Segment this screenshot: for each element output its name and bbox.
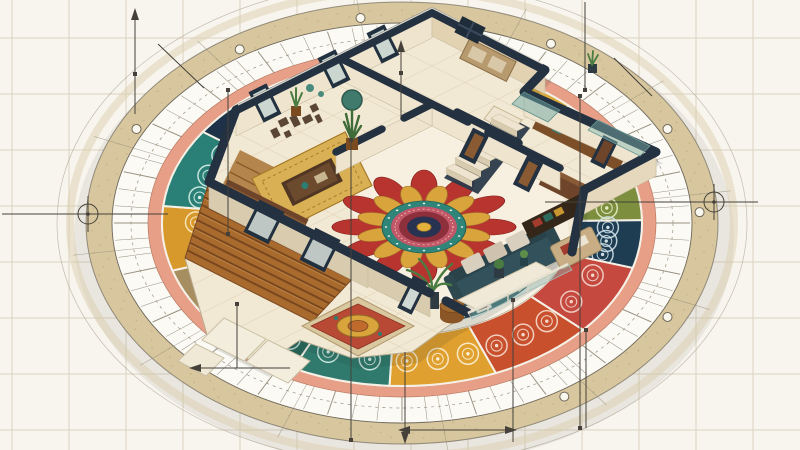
sand-speckle [128, 138, 130, 140]
sand-speckle [380, 14, 382, 16]
sand-speckle [696, 273, 698, 275]
dim-square [578, 426, 582, 430]
sand-speckle [412, 15, 414, 17]
sand-speckle [109, 194, 111, 196]
sand-speckle [369, 10, 371, 12]
sand-speckle [593, 380, 595, 382]
sand-speckle [218, 396, 220, 398]
mandala-dot [396, 210, 399, 212]
rug-dot [334, 316, 338, 320]
sand-speckle [98, 274, 100, 276]
sand-speckle [108, 258, 110, 260]
dim-square [349, 438, 353, 442]
sand-speckle [110, 287, 112, 289]
sand-speckle [707, 207, 709, 209]
mandala-dot [423, 250, 426, 252]
mandala-dot [461, 226, 464, 228]
sand-speckle [326, 429, 328, 431]
icon-dot [570, 300, 573, 303]
sand-speckle [204, 71, 206, 73]
sand-speckle [93, 207, 95, 209]
sand-speckle [616, 366, 618, 368]
band-marker-circle [132, 125, 141, 134]
sand-speckle [103, 266, 105, 268]
sand-speckle [495, 22, 497, 24]
sand-speckle [149, 105, 151, 107]
sand-speckle [673, 314, 675, 316]
sand-speckle [171, 365, 173, 367]
sand-speckle [452, 421, 454, 423]
sand-speckle [603, 68, 605, 70]
band-marker-circle [663, 125, 672, 134]
sand-speckle [626, 92, 628, 94]
sand-speckle [656, 332, 658, 334]
sand-speckle [137, 311, 139, 313]
mandala-dot [385, 226, 388, 228]
sand-speckle [135, 320, 137, 322]
sand-speckle [531, 38, 533, 40]
sand-speckle [525, 31, 527, 33]
mandala-dot [396, 243, 399, 245]
sand-speckle [432, 427, 434, 429]
mandala-dot [437, 248, 440, 250]
sand-speckle [622, 75, 624, 77]
sand-speckle [674, 130, 676, 132]
sand-speckle [412, 433, 414, 435]
dim-square [399, 71, 403, 75]
sand-speckle [659, 119, 661, 121]
sand-speckle [349, 16, 351, 18]
sand-speckle [694, 172, 696, 174]
band-marker-circle [547, 39, 556, 48]
sand-speckle [234, 393, 236, 395]
compass-dot [712, 200, 716, 204]
sand-speckle [274, 26, 276, 28]
sand-speckle [605, 76, 607, 78]
dim-square [578, 94, 582, 98]
sand-speckle [337, 13, 339, 15]
sand-speckle [267, 413, 269, 415]
sand-speckle [287, 27, 289, 29]
sand-speckle [239, 401, 241, 403]
icon-dot [495, 344, 498, 347]
sand-speckle [169, 357, 171, 359]
sand-speckle [711, 245, 713, 247]
sand-speckle [482, 417, 484, 419]
sand-speckle [391, 19, 393, 21]
icon-dot [436, 357, 439, 360]
sand-speckle [210, 380, 212, 382]
sand-speckle [547, 33, 549, 35]
sand-speckle [203, 59, 205, 61]
illustration-canvas: Isometric cutaway house floor plan cente… [0, 0, 800, 450]
sand-speckle [599, 59, 601, 61]
dim-square [226, 232, 230, 236]
sand-speckle [270, 37, 272, 39]
sand-speckle [660, 102, 662, 104]
sand-speckle [228, 58, 230, 60]
sand-speckle [106, 164, 108, 166]
sand-speckle [574, 45, 576, 47]
sand-speckle [143, 119, 145, 121]
icon-dot [521, 333, 524, 336]
sand-speckle [464, 425, 466, 427]
sand-speckle [683, 159, 685, 161]
sand-speckle [98, 185, 100, 187]
sand-speckle [553, 403, 555, 405]
sand-speckle [686, 294, 688, 296]
sand-speckle [358, 434, 360, 436]
sand-speckle [650, 347, 652, 349]
sand-speckle [255, 397, 257, 399]
sand-speckle [151, 330, 153, 332]
plant [494, 259, 504, 269]
sand-speckle [537, 414, 539, 416]
vastu-blueprint-scene: Isometric cutaway house floor plan cente… [0, 0, 800, 450]
arrow-up [131, 8, 139, 20]
sand-speckle [161, 102, 163, 104]
sand-speckle [629, 363, 631, 365]
sand-speckle [676, 121, 678, 123]
sand-speckle [179, 74, 181, 76]
sand-speckle [695, 258, 697, 260]
icon-dot [605, 206, 608, 209]
sand-speckle [558, 49, 560, 51]
sand-speckle [137, 108, 139, 110]
sand-speckle [255, 47, 257, 49]
pot [520, 258, 528, 266]
dim-square [511, 298, 515, 302]
compass-dot [86, 212, 90, 216]
band-marker-circle [663, 312, 672, 321]
sand-speckle [583, 62, 585, 64]
sand-speckle [494, 420, 496, 422]
sand-speckle [703, 251, 705, 253]
sand-speckle [579, 54, 581, 56]
sand-speckle [349, 428, 351, 430]
sand-speckle [638, 350, 640, 352]
sand-speckle [698, 163, 700, 165]
sand-speckle [618, 377, 620, 379]
sand-speckle [151, 339, 153, 341]
sand-speckle [624, 84, 626, 86]
sand-speckle [401, 10, 403, 12]
mandala-dot [437, 204, 440, 206]
icon-dot [601, 253, 604, 256]
pot [494, 268, 504, 278]
icon-dot [466, 352, 469, 355]
sand-speckle [191, 72, 193, 74]
sand-speckle [690, 180, 692, 182]
sand-speckle [296, 422, 298, 424]
sand-speckle [318, 423, 320, 425]
round-wall-art [342, 90, 362, 110]
icon-dot [591, 274, 594, 277]
dim-square [133, 72, 137, 76]
dim-square [584, 328, 588, 332]
sand-speckle [134, 328, 136, 330]
sand-speckle [181, 86, 183, 88]
sand-speckle [643, 101, 645, 103]
sand-speckle [660, 111, 662, 113]
sand-speckle [114, 279, 116, 281]
sand-speckle [123, 300, 125, 302]
sand-speckle [683, 309, 685, 311]
sand-speckle [310, 416, 312, 418]
mandala-dot [458, 235, 461, 237]
dim-square [226, 88, 230, 92]
sand-speckle [193, 382, 195, 384]
sand-speckle [107, 179, 109, 181]
sand-speckle [282, 408, 284, 410]
wall-plate [306, 84, 314, 92]
sand-speckle [169, 88, 171, 90]
icon-dot [545, 319, 548, 322]
sand-speckle [105, 215, 107, 217]
sand-speckle [213, 388, 215, 390]
sand-speckle [626, 352, 628, 354]
sand-speckle [340, 422, 342, 424]
icon-dot [606, 226, 609, 229]
sand-speckle [475, 428, 477, 430]
sand-speckle [507, 422, 509, 424]
sand-speckle [699, 237, 701, 239]
mandala-dot [450, 243, 453, 245]
sand-speckle [99, 244, 101, 246]
sand-speckle [705, 185, 707, 187]
sand-speckle [707, 230, 709, 232]
plant [520, 250, 528, 258]
sand-speckle [694, 222, 696, 224]
band-marker-circle [695, 208, 704, 217]
mandala-dot [450, 210, 453, 212]
sand-speckle [524, 413, 526, 415]
sand-speckle [668, 328, 670, 330]
sand-speckle [645, 336, 647, 338]
sand-speckle [151, 348, 153, 350]
sand-speckle [260, 405, 262, 407]
rug-dot [378, 332, 382, 336]
sand-speckle [105, 236, 107, 238]
sand-speckle [317, 21, 319, 23]
mandala-dot [408, 248, 411, 250]
sand-speckle [101, 200, 103, 202]
sand-speckle [132, 123, 134, 125]
mandala-dot [388, 217, 391, 219]
mandala-dot [423, 203, 426, 205]
sand-speckle [673, 139, 675, 141]
dim-square [235, 302, 239, 306]
sand-speckle [258, 36, 260, 38]
sand-speckle [705, 267, 707, 269]
band-marker-circle [356, 14, 365, 23]
sand-speckle [299, 29, 301, 31]
sand-speckle [116, 158, 118, 160]
sand-speckle [126, 153, 128, 155]
sand-speckle [423, 437, 425, 439]
sand-speckle [380, 431, 382, 433]
sand-speckle [116, 173, 118, 175]
sand-speckle [98, 222, 100, 224]
icon-dot [198, 196, 201, 199]
icon-dot [605, 239, 608, 242]
sand-speckle [126, 291, 128, 293]
dim-square [349, 138, 353, 142]
sand-speckle [390, 437, 392, 439]
sand-speckle [230, 47, 232, 49]
sand-speckle [503, 29, 505, 31]
band-marker-circle [235, 45, 244, 54]
sand-speckle [190, 373, 192, 375]
mandala-center-dot [417, 223, 431, 232]
sand-speckle [687, 279, 689, 281]
sand-speckle [565, 404, 567, 406]
sand-speckle [121, 308, 123, 310]
sand-speckle [465, 16, 467, 18]
sand-speckle [686, 151, 688, 153]
sand-speckle [121, 128, 123, 130]
sand-speckle [157, 91, 159, 93]
mandala-dot [408, 204, 411, 206]
mandala-dot [458, 217, 461, 219]
wall-plate [318, 91, 324, 97]
sand-speckle [91, 230, 93, 232]
sand-speckle [696, 288, 698, 290]
sand-speckle [370, 426, 372, 428]
sand-speckle [487, 15, 489, 17]
sand-speckle [540, 403, 542, 405]
dim-square [583, 88, 587, 92]
sand-speckle [689, 142, 691, 144]
mandala-dot [388, 235, 391, 237]
sand-speckle [329, 23, 331, 25]
sand-speckle [605, 379, 607, 381]
band-marker-circle [560, 392, 569, 401]
sand-speckle [305, 18, 307, 20]
